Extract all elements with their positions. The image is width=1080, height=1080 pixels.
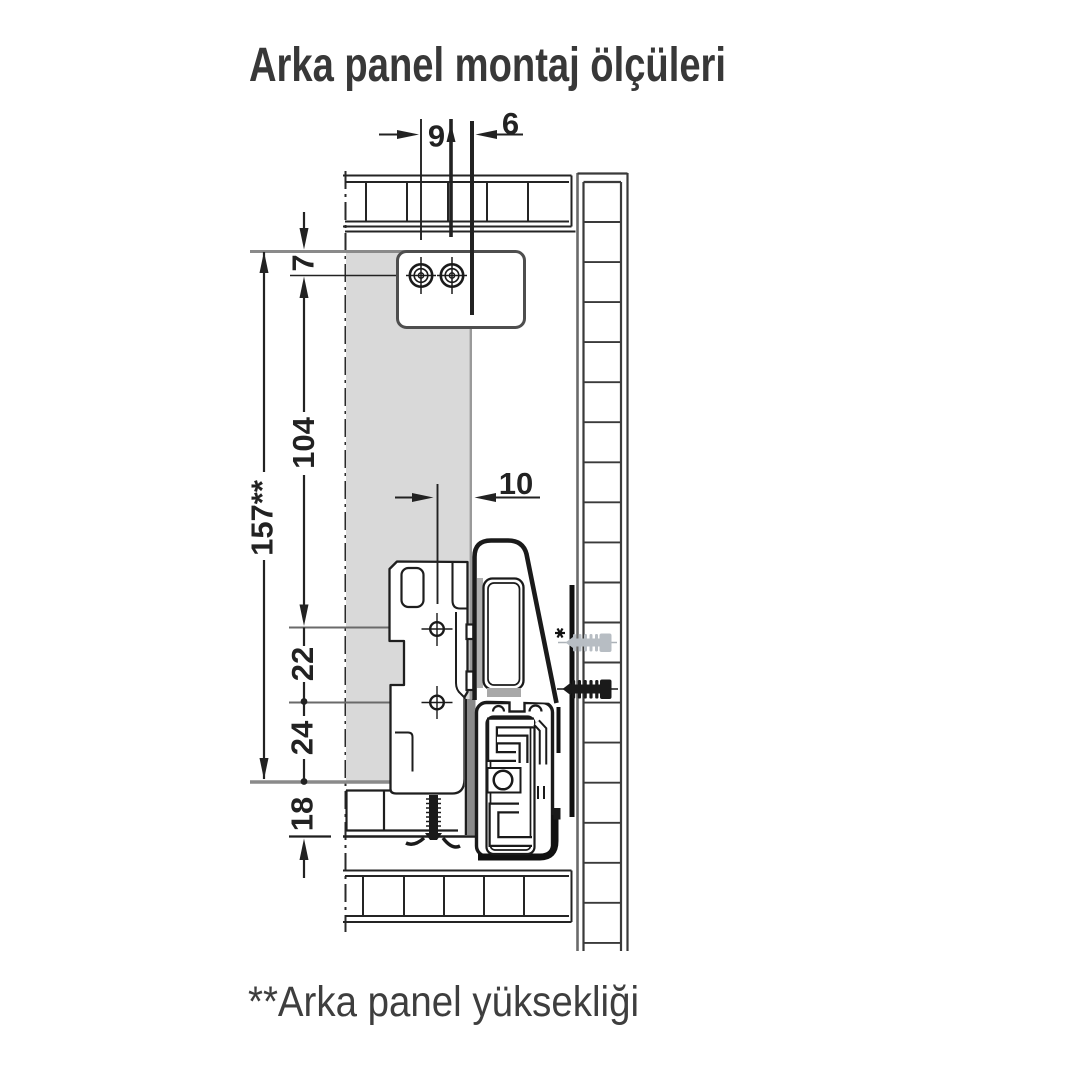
svg-text:6: 6 [502, 106, 519, 141]
svg-text:**Arka panel yüksekliği: **Arka panel yüksekliği [248, 978, 639, 1026]
svg-text:104: 104 [286, 416, 321, 468]
svg-text:Arka panel montaj ölçüleri: Arka panel montaj ölçüleri [249, 39, 726, 92]
svg-text:9: 9 [428, 119, 445, 154]
svg-text:18: 18 [284, 797, 319, 831]
svg-text:10: 10 [499, 466, 533, 501]
svg-text:24: 24 [284, 720, 319, 755]
svg-text:7: 7 [285, 254, 320, 271]
svg-text:157**: 157** [244, 479, 279, 556]
svg-text:22: 22 [285, 647, 320, 681]
